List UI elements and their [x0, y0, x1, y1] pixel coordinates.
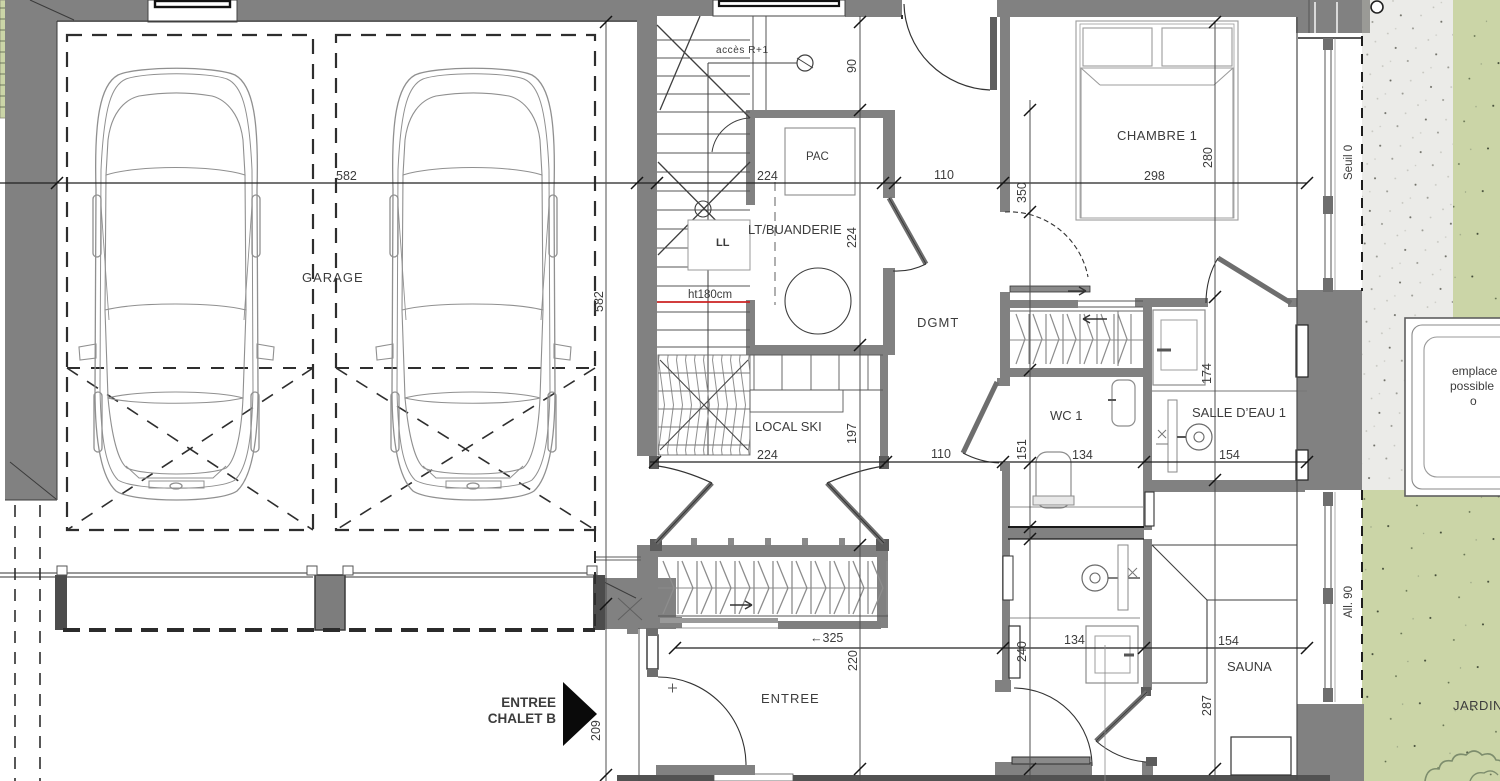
svg-text:LT/BUANDERIE: LT/BUANDERIE [748, 222, 842, 237]
svg-text:110: 110 [934, 168, 954, 182]
svg-text:280: 280 [1201, 147, 1215, 168]
svg-text:SAUNA: SAUNA [1227, 659, 1272, 674]
svg-text:←325: ←325 [810, 631, 843, 645]
svg-text:134: 134 [1064, 633, 1085, 647]
svg-text:ht180cm: ht180cm [688, 289, 732, 301]
svg-text:JARDIN: JARDIN [1453, 698, 1500, 713]
svg-text:240: 240 [1015, 641, 1029, 662]
svg-text:Seuil 0: Seuil 0 [1343, 145, 1355, 180]
svg-text:224: 224 [757, 169, 778, 183]
svg-text:o: o [1470, 394, 1477, 408]
svg-text:CHAMBRE 1: CHAMBRE 1 [1117, 128, 1197, 143]
svg-text:WC 1: WC 1 [1050, 408, 1083, 423]
svg-text:110: 110 [931, 447, 951, 461]
svg-text:224: 224 [757, 448, 778, 462]
svg-text:134: 134 [1072, 448, 1093, 462]
svg-text:90: 90 [845, 59, 859, 73]
svg-text:287: 287 [1200, 695, 1214, 716]
svg-text:350: 350 [1015, 182, 1029, 203]
svg-text:174: 174 [1200, 363, 1214, 384]
svg-text:LL: LL [716, 237, 730, 249]
svg-text:298: 298 [1144, 169, 1165, 183]
svg-text:ENTREE: ENTREE [761, 691, 820, 706]
svg-text:All. 90: All. 90 [1343, 586, 1355, 618]
svg-text:DGMT: DGMT [917, 315, 959, 330]
svg-text:154: 154 [1219, 448, 1240, 462]
svg-text:PAC: PAC [806, 151, 829, 163]
svg-text:582: 582 [592, 291, 606, 312]
svg-text:CHALET B: CHALET B [488, 711, 556, 726]
svg-text:151: 151 [1015, 439, 1029, 460]
svg-text:LOCAL SKI: LOCAL SKI [755, 419, 822, 434]
svg-text:emplace: emplace [1452, 364, 1498, 378]
svg-text:197: 197 [845, 423, 859, 444]
svg-text:220: 220 [846, 650, 860, 671]
svg-text:ENTREE: ENTREE [501, 695, 556, 710]
svg-text:582: 582 [336, 169, 357, 183]
svg-text:possible: possible [1450, 379, 1494, 393]
svg-text:224: 224 [845, 227, 859, 248]
svg-text:SALLE D’EAU 1: SALLE D’EAU 1 [1192, 405, 1286, 420]
svg-text:209: 209 [589, 720, 603, 741]
svg-text:154: 154 [1218, 634, 1239, 648]
svg-text:GARAGE: GARAGE [302, 270, 364, 285]
svg-text:accès R+1: accès R+1 [716, 45, 768, 56]
